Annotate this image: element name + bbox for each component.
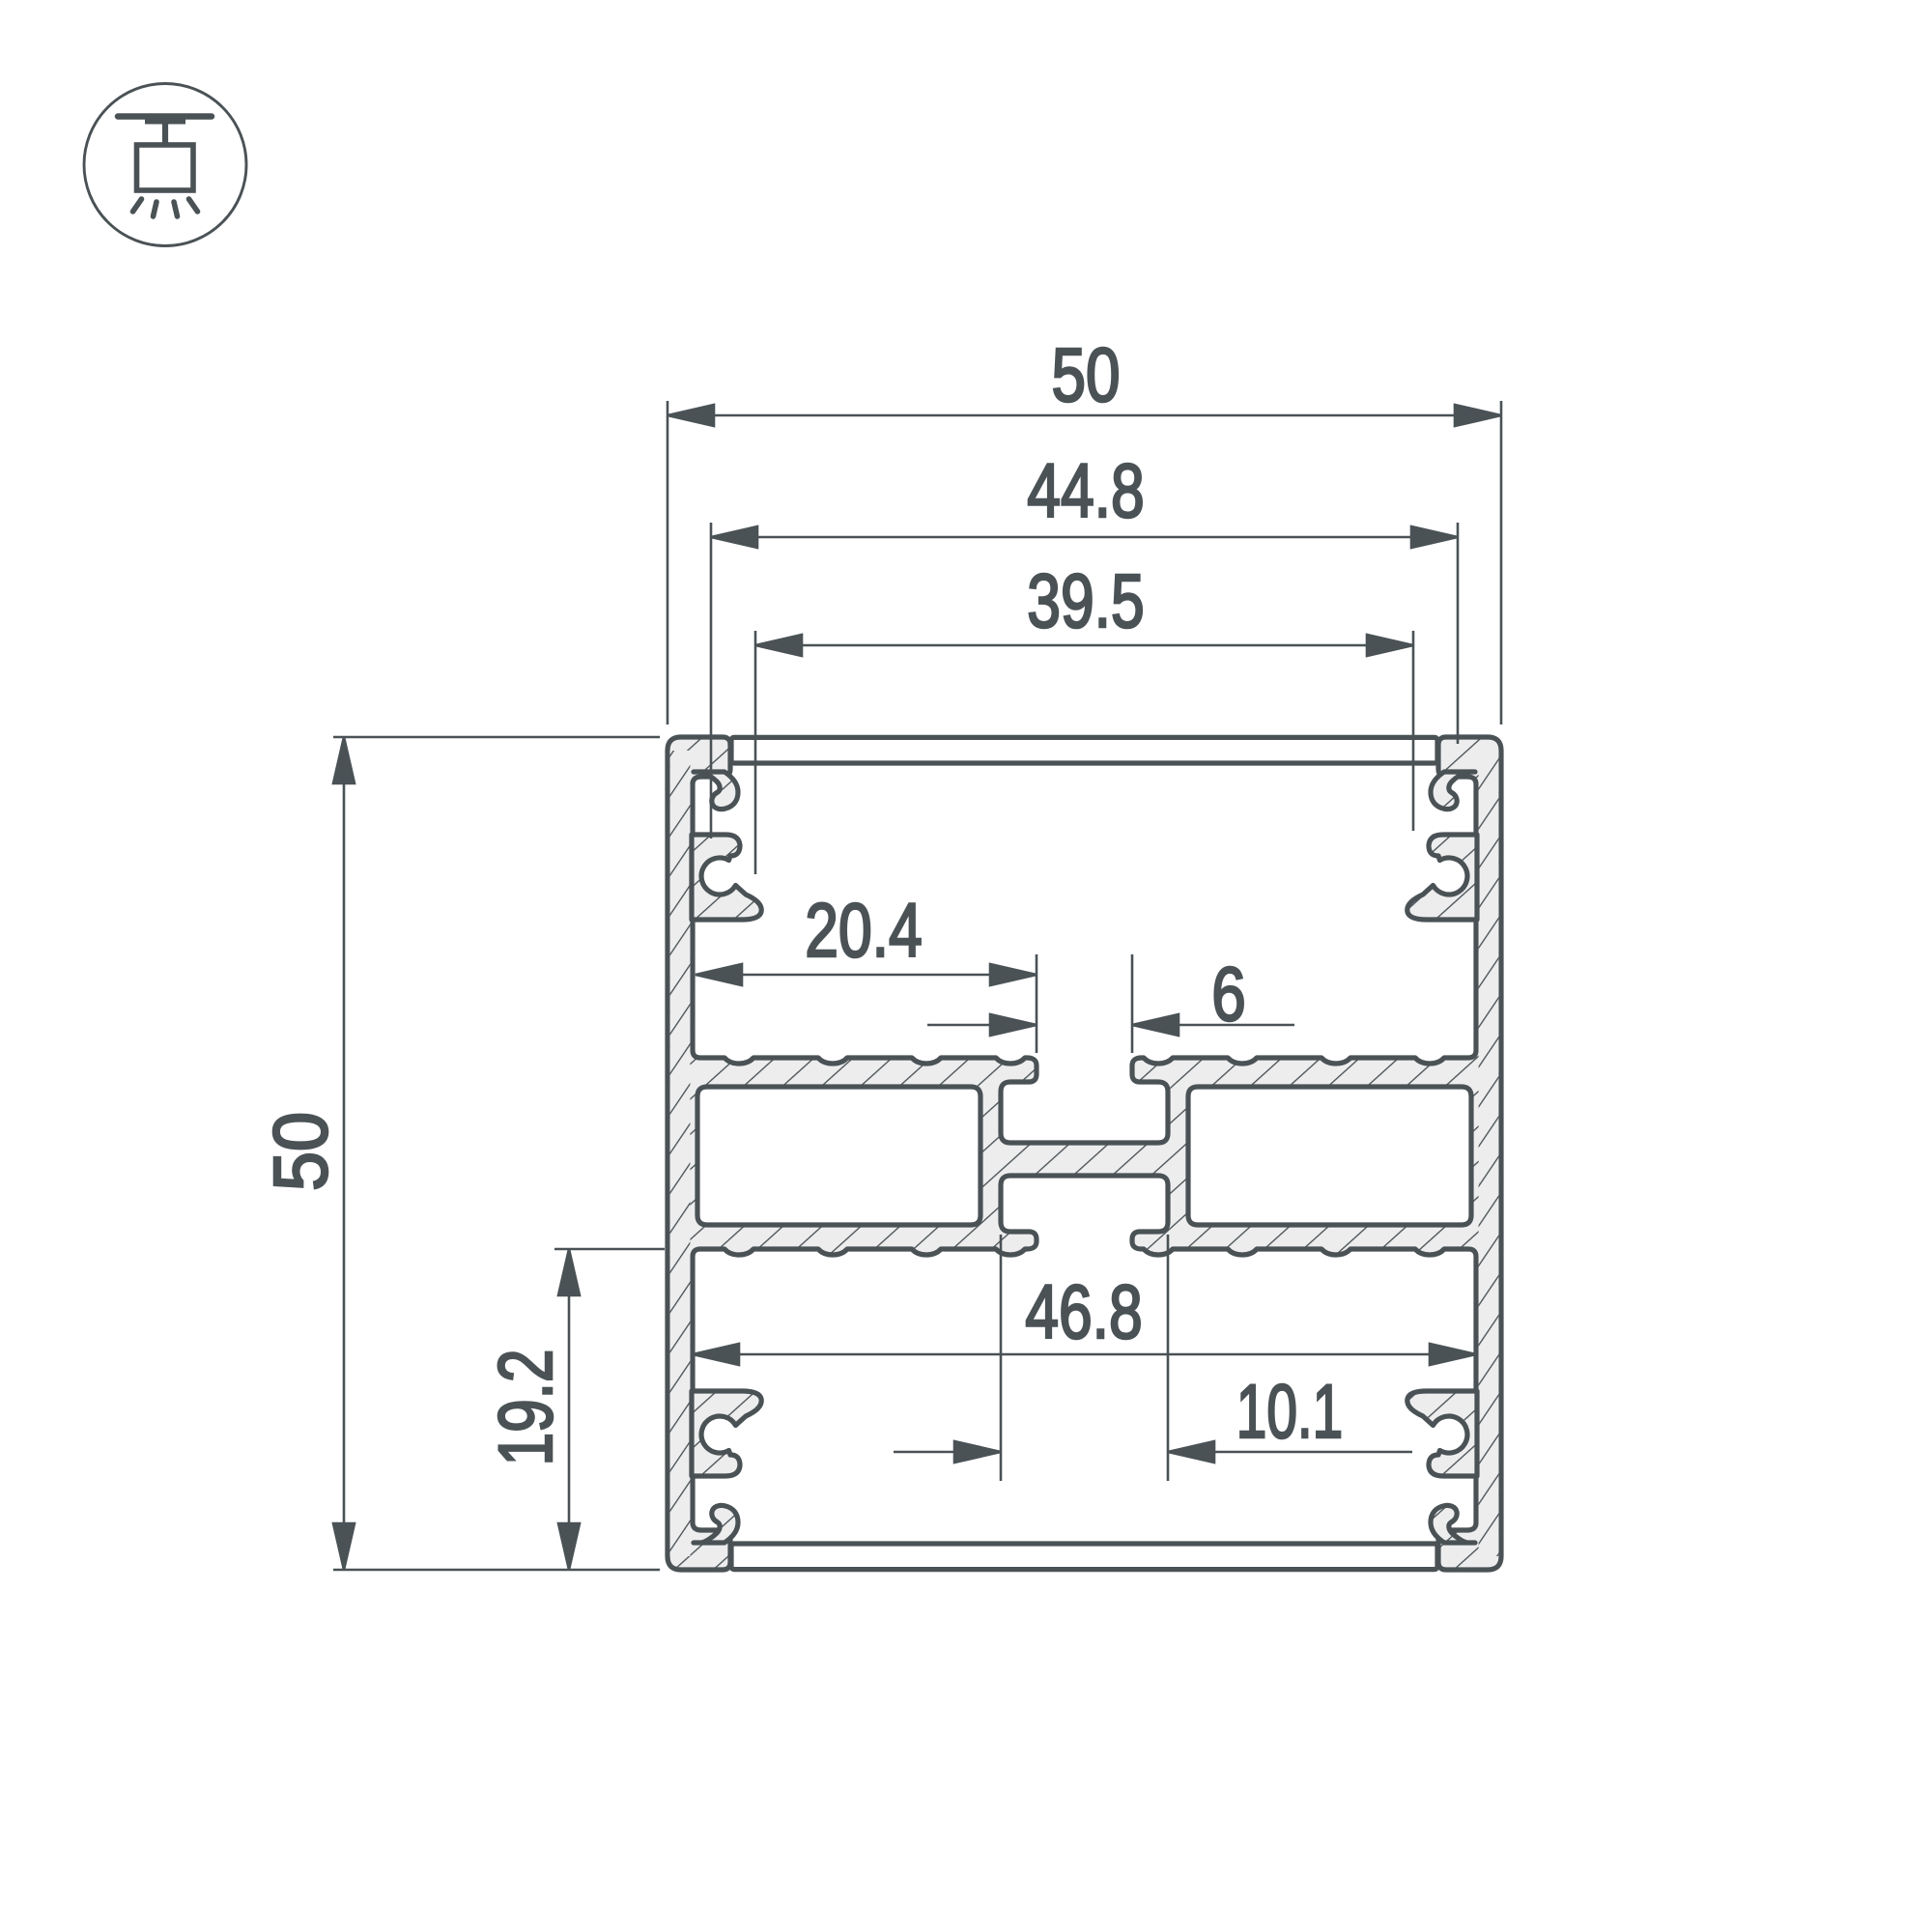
svg-text:6: 6 bbox=[1211, 951, 1246, 1037]
svg-text:46.8: 46.8 bbox=[1025, 1268, 1143, 1354]
svg-text:50: 50 bbox=[257, 1112, 343, 1191]
svg-text:19.2: 19.2 bbox=[482, 1350, 568, 1466]
svg-text:44.8: 44.8 bbox=[1027, 447, 1145, 533]
svg-text:20.4: 20.4 bbox=[805, 887, 923, 973]
svg-text:39.5: 39.5 bbox=[1027, 557, 1145, 643]
svg-text:10.1: 10.1 bbox=[1236, 1368, 1344, 1454]
svg-text:50: 50 bbox=[1052, 331, 1121, 417]
